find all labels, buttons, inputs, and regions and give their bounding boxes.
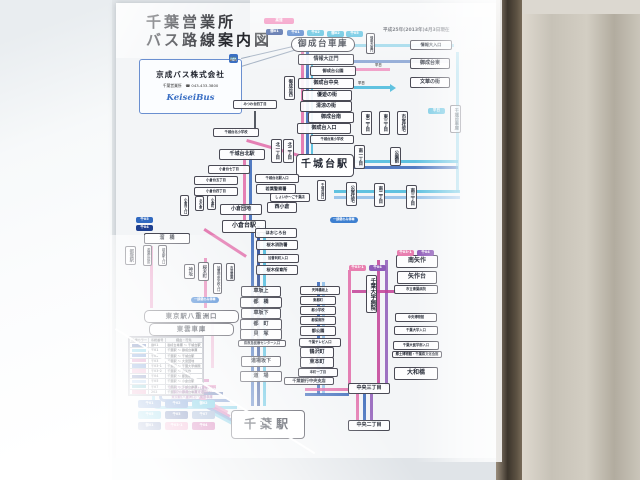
bus-stop: 桜木駅入口	[158, 245, 167, 266]
bus-stop: 県救急医療センター入口	[238, 340, 286, 347]
route-chip: 千03-1	[397, 250, 414, 256]
route-chip: 平日	[428, 108, 445, 114]
bus-stop: 小倉台四丁目	[194, 187, 238, 196]
route-chip: 千01	[287, 30, 304, 36]
bus-stop: 神坂	[184, 264, 195, 279]
company-box: 🚌 京成バス株式会社 千葉営業所 ☎ 043-433-3800 KeiseiBu…	[139, 59, 242, 114]
bus-stop: 東二丁目	[361, 111, 372, 135]
bus-stop: 千葉大医学部入口	[393, 341, 439, 350]
route-chip: 千04	[417, 250, 434, 256]
route-chip: 千04	[369, 265, 386, 271]
bus-stop: 御成台中央	[298, 78, 354, 89]
board-bottom-edge	[112, 458, 502, 480]
bus-stop: 小倉台五丁目	[194, 176, 238, 185]
route-chip: 千02	[165, 400, 188, 408]
bus-stop: 車坂下	[241, 308, 281, 319]
route-chip: 千04	[192, 422, 215, 430]
bus-stop: ほおじろ台	[255, 228, 297, 238]
bus-stop: 都保育所	[300, 316, 336, 325]
metal-pole	[522, 0, 640, 480]
route-line	[370, 393, 373, 421]
bus-stop: 小倉台七丁目	[208, 165, 250, 174]
legend-color-swatch	[132, 359, 146, 362]
route-chip: 千05	[136, 217, 153, 223]
route-line	[348, 270, 351, 386]
route-line	[385, 260, 388, 386]
bus-stop: 西小倉	[267, 202, 297, 213]
route-chip: 千03-1	[165, 422, 188, 430]
bus-icon: 🚌	[229, 54, 238, 63]
bus-stop: 小倉団地	[220, 204, 262, 215]
legend-color-swatch	[132, 364, 146, 367]
route-chip: 千02	[307, 30, 324, 36]
bus-stop: 中央博物館	[395, 313, 437, 322]
route-line	[305, 393, 349, 396]
bus-stop: 車坂上	[241, 286, 281, 297]
bus-stop: 本町一丁目	[298, 368, 338, 377]
bus-stop: 公園前	[390, 147, 401, 166]
route-line	[352, 160, 458, 163]
route-line	[356, 393, 359, 421]
legend-color-swatch	[132, 375, 146, 378]
legend-route-desc: 千葉駅 〜 千葉大学病院	[165, 363, 202, 368]
weekday-label: 平日	[375, 62, 382, 67]
terminal-tokyo-station-yaesu: 東京駅八重洲口	[144, 310, 239, 323]
bus-stop: 都賀駅	[125, 246, 136, 265]
bus-stop: 中央二丁目	[348, 420, 390, 431]
route-chip: 御02	[327, 31, 344, 37]
bus-stop: 都公園	[300, 326, 336, 336]
weekday-arrow-right-icon	[390, 84, 396, 92]
bus-stop: 南一丁目	[354, 145, 365, 169]
terminal-chishirodai-station: 千城台駅	[296, 154, 354, 177]
bus-stop: 南矢作	[396, 255, 438, 268]
terminal-shinonome-depot: 東雲車庫	[149, 323, 234, 336]
legend-color-swatch	[132, 369, 146, 372]
bus-stop: 道場坂下	[241, 356, 281, 367]
legend-color-swatch	[132, 390, 146, 393]
route-line	[363, 393, 366, 421]
weekday-label: 平日	[358, 80, 365, 85]
legend-color-swatch	[132, 380, 146, 383]
company-name: 京成バス株式会社	[140, 69, 241, 80]
poster-title: 千葉営業所 バス路線案内図	[146, 13, 272, 49]
photo-of-bus-route-map-poster: 千葉営業所 バス路線案内図 平成25年(2013年)4月3日現在 🚌 京成バス株…	[0, 0, 640, 480]
bus-stop: 情報大東門	[366, 33, 375, 54]
bus-stop: 千城台西口	[317, 180, 326, 201]
bus-stop: 市営霊園	[226, 263, 235, 281]
route-chip: 千03	[165, 411, 188, 419]
route-chip: 御01	[138, 422, 161, 430]
bus-stop: 御成台公園	[310, 66, 356, 76]
route-chip: 千04	[136, 225, 153, 231]
route-chip: 千01	[138, 400, 161, 408]
bus-stop: 中央三丁目	[348, 383, 390, 394]
bus-stop: 貝 塚	[240, 329, 282, 340]
note-line: 東京駅(八重洲口)・東雲車庫	[148, 395, 236, 399]
bus-stop: 千城台北駅	[219, 149, 265, 160]
bus-stop: 加曽利中学校入口	[213, 263, 222, 294]
bus-stop: 千城台北駅入口	[255, 174, 299, 183]
route-line	[377, 260, 380, 386]
bus-stop: 情報大正門	[298, 54, 354, 65]
bus-stop: 東三丁目	[379, 111, 390, 135]
bus-stop: しょいか〜ご千葉店	[270, 193, 310, 202]
partial-stop-note: 一部便のみ停車	[191, 297, 219, 303]
terminal-chiba-station: 千葉駅	[231, 410, 305, 439]
bus-stop: 千葉銀行中央支店	[284, 377, 334, 385]
bus-stop: 千葉テレビ入口	[299, 338, 341, 347]
bus-stop: 矢作台	[397, 271, 437, 284]
bus-stop: 御成台南	[308, 112, 354, 123]
company-phone: 千葉営業所 ☎ 043-433-3800	[140, 83, 241, 89]
route-chip-grid: 千01 千02 御02 千05 千03 千07 御01 千03-1 千04	[138, 400, 215, 430]
bus-stop: 御成台東	[410, 58, 450, 69]
legend-route-desc: 千葉駅 〜 御成台車庫	[165, 348, 202, 353]
bus-stop: 市営住宅	[397, 111, 408, 135]
bus-stop: 優遊の街	[302, 90, 352, 101]
legend-header: 系統番号	[149, 338, 165, 343]
metal-pole-top	[522, 0, 640, 14]
bus-stop: 郷土博物館・千葉県文化会館	[392, 351, 442, 358]
route-line	[352, 166, 458, 169]
legend-color-swatch	[132, 349, 146, 352]
bus-stop: 千城台北小学校	[213, 128, 259, 137]
route-line	[305, 388, 349, 391]
bus-stop-chiba-university-hospital: 千葉大学病院	[366, 275, 377, 313]
mytown-direct-note: マイタウンダイレクト(高速バス) 御成台車庫 〜(高速道路)〜 東京駅(八重洲口…	[148, 386, 236, 399]
bus-stop: 北一丁目	[271, 139, 282, 163]
bus-stop: 公営住宅	[346, 182, 357, 206]
route-chip: 御02	[192, 400, 215, 408]
bus-stop: 若葉区役所	[143, 245, 152, 266]
bus-stop: 東都町	[300, 296, 336, 305]
bus-stop: 御成台西	[284, 76, 295, 100]
route-chip: 千03-1	[349, 265, 366, 271]
weekday-arrow-left-icon	[354, 68, 390, 71]
legend-color-swatch	[132, 344, 146, 347]
bus-stop: 小倉台入口	[180, 195, 189, 216]
route-chip: 千05	[138, 411, 161, 419]
bus-stop: 情報大入口	[410, 40, 452, 50]
partial-stop-note: 一部便のみ停車	[330, 217, 358, 223]
poster-date: 平成25年(2013年)4月3日現在	[383, 27, 450, 33]
bus-stop: 南三丁目	[406, 185, 417, 209]
bus-stop: 御成台入口	[297, 123, 351, 134]
bus-stop: 大和橋	[394, 367, 438, 380]
bus-stop: 桜木保育所	[256, 265, 298, 275]
bus-stop: 桜木消防署	[256, 240, 298, 250]
bus-stop: 北二丁目	[283, 139, 294, 163]
bus-stop: 北小倉	[195, 196, 204, 211]
bus-stop: 加曽利町入口	[257, 254, 299, 263]
bus-stop: みつわ台四丁目	[233, 100, 277, 109]
legend-color-swatch	[132, 354, 146, 357]
bus-stop: 千城台車庫	[450, 105, 461, 133]
company-logo: KeiseiBus	[140, 93, 241, 103]
route-chip: 千07	[192, 411, 215, 419]
bus-stop: 千城台東小学校	[310, 135, 354, 144]
route-chip: 御01	[266, 29, 283, 35]
weekday-arrow-right-icon	[354, 86, 390, 89]
bus-stop: 小倉町	[207, 195, 216, 210]
terminal-onaridai-depot: 御成台車庫	[291, 37, 355, 52]
bus-stop: 都小学校	[300, 306, 336, 315]
bus-stop: 都 橋	[240, 297, 282, 308]
legend-header: 路線カラー	[130, 338, 149, 343]
bus-stop: 文華の街	[410, 77, 450, 88]
bus-stop: 千葉大学入口	[394, 326, 438, 335]
bus-stop: 東本町	[300, 357, 334, 368]
legend-color-swatch	[132, 385, 146, 388]
bus-stop: 天神橋坂上	[300, 286, 340, 295]
background-wall	[0, 0, 116, 480]
bus-stop: 溜 橋	[144, 233, 190, 244]
bus-stop: 清涼の街	[300, 101, 352, 112]
route-chip: 千05	[346, 31, 363, 37]
bus-stop: 桜木町	[198, 262, 209, 281]
bus-stop: 市立青葉病院	[394, 285, 438, 294]
bus-stop: 道 場	[240, 371, 282, 382]
case-frame-edge	[496, 0, 522, 480]
route-chip-express: 高速	[264, 18, 294, 24]
bus-stop: 南二丁目	[374, 183, 385, 207]
